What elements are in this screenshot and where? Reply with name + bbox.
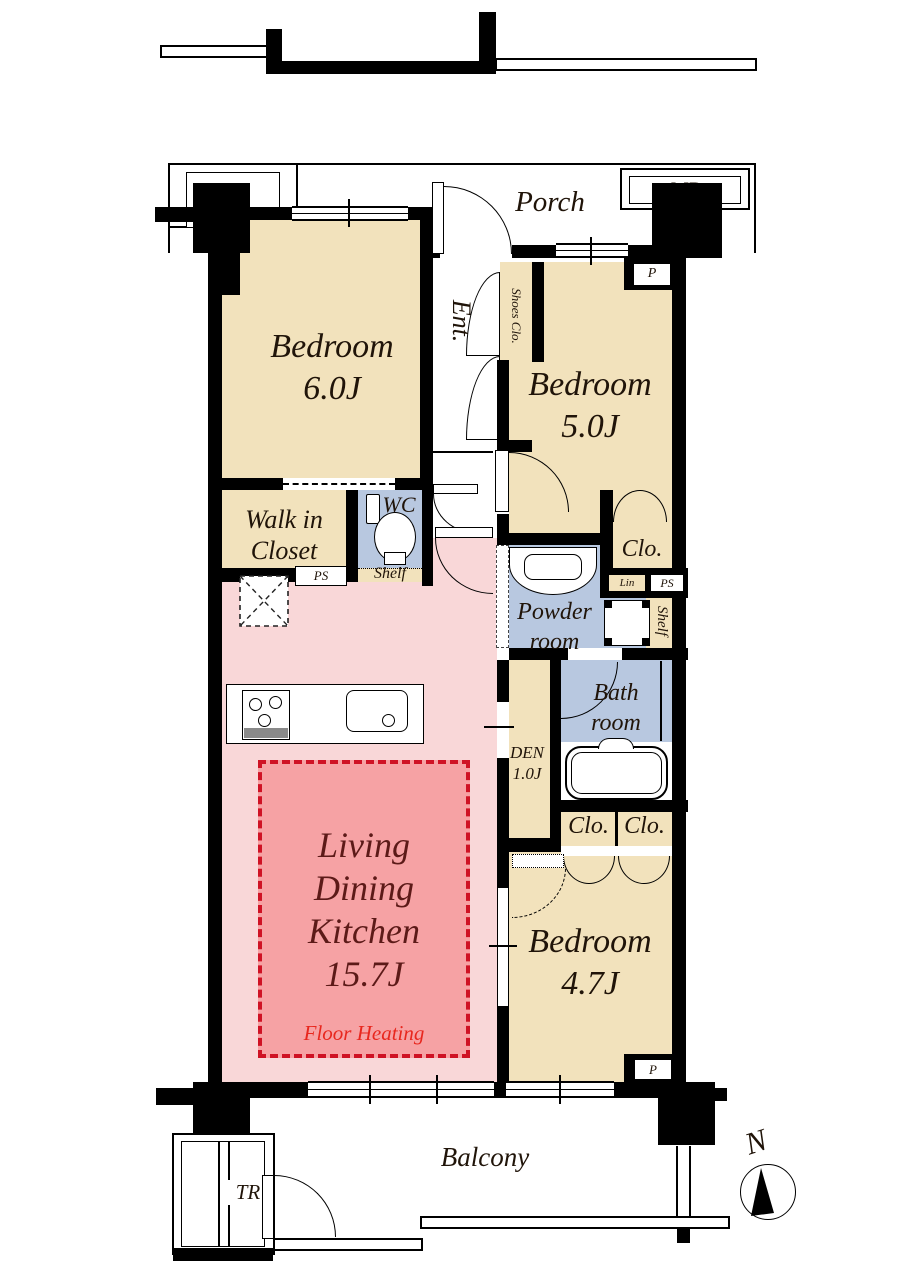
ldk-door-leaf [435, 527, 493, 538]
trunk-room-door-leaf [262, 1175, 274, 1239]
wall [497, 533, 612, 545]
wall [532, 262, 544, 362]
wc-door-leaf [433, 484, 478, 494]
neighbor-wall-fragment [266, 61, 496, 74]
balcony-label: Balcony [425, 1142, 545, 1173]
trunk-room-line [218, 1141, 220, 1247]
window [556, 243, 628, 258]
kitchen-sink-icon [346, 690, 408, 732]
entrance-step-line [433, 451, 493, 453]
closet-opening-dash [283, 483, 395, 485]
bathtub-deck-icon [598, 738, 634, 749]
floor-heating-label: Floor Heating [262, 1021, 466, 1046]
wall [497, 660, 509, 702]
shelf-right-label: Shelf [654, 571, 670, 671]
wall [550, 800, 688, 812]
floor-heating-zone: Living Dining Kitchen 15.7J Floor Heatin… [258, 760, 470, 1058]
wc-shelf-label: Shelf [358, 565, 422, 583]
washing-machine-icon [604, 600, 650, 646]
walk-in-closet-label: Walk in Closet [222, 504, 346, 566]
balcony-railing [420, 1216, 730, 1229]
north-arrow-icon [740, 1164, 796, 1220]
wall [688, 1088, 727, 1101]
north-label: N [731, 1119, 780, 1166]
porch-label: Porch [495, 186, 605, 220]
powder-room-label: Powder room [509, 597, 600, 657]
pillar [652, 183, 722, 258]
closet-left-label: Clo. [562, 813, 615, 840]
trunk-room-door-arc [274, 1175, 336, 1237]
bathtub-icon [565, 746, 668, 800]
wall [156, 1088, 193, 1105]
den-label: DEN 1.0J [504, 742, 550, 784]
closet-right-label: Clo. [618, 813, 671, 840]
opening-tick [484, 726, 514, 728]
neighbor-wall-fragment [495, 58, 757, 71]
linen-box: Lin [608, 574, 646, 592]
balcony-divider [676, 1146, 691, 1218]
window [308, 1081, 494, 1098]
floor-plan: MB Porch [0, 0, 906, 1274]
closet-bedroom5-label: Clo. [612, 536, 672, 563]
wall [550, 660, 561, 808]
faucet-icon [382, 714, 395, 727]
wall [422, 455, 433, 586]
pillar [208, 253, 240, 295]
shoes-closet-label: Shoes Clo. [508, 241, 524, 391]
wall [173, 1248, 273, 1261]
pipe-label-bottom: P [634, 1059, 672, 1080]
bedroom-6j-label: Bedroom 6.0J [232, 326, 432, 410]
window-tick [348, 199, 350, 227]
pipe-label-top: P [633, 263, 671, 286]
wall [155, 207, 208, 222]
ldk-label: Living Dining Kitchen 15.7J [262, 764, 466, 996]
closet-threshold [561, 846, 672, 856]
neighbor-wall-fragment [479, 12, 496, 74]
ps-box-left: PS [295, 566, 347, 586]
pocket-door-hatch [512, 854, 564, 868]
wall [550, 808, 561, 846]
toilet-icon [384, 552, 406, 565]
window-tick [436, 1075, 438, 1104]
window-tick [590, 237, 592, 265]
bedroom5-door-leaf [495, 450, 509, 512]
wall [208, 207, 222, 1098]
stove-icon [242, 690, 290, 740]
refrigerator-space-icon [238, 574, 290, 628]
bedroom-47j-label: Bedroom 4.7J [490, 921, 690, 1005]
balcony-railing [273, 1238, 423, 1251]
wc-label: WC [376, 492, 422, 518]
powder-sliding-door [496, 545, 509, 648]
bath-room-label: Bath room [566, 678, 666, 738]
entrance-door-leaf [432, 182, 444, 254]
window-tick [559, 1075, 561, 1104]
window [292, 206, 408, 221]
entrance-label: Ent. [450, 271, 476, 371]
neighbor-wall-fragment [160, 45, 268, 58]
wall [497, 514, 509, 533]
vanity-sink-icon [524, 554, 582, 580]
window-tick [369, 1075, 371, 1104]
wall [346, 490, 358, 582]
